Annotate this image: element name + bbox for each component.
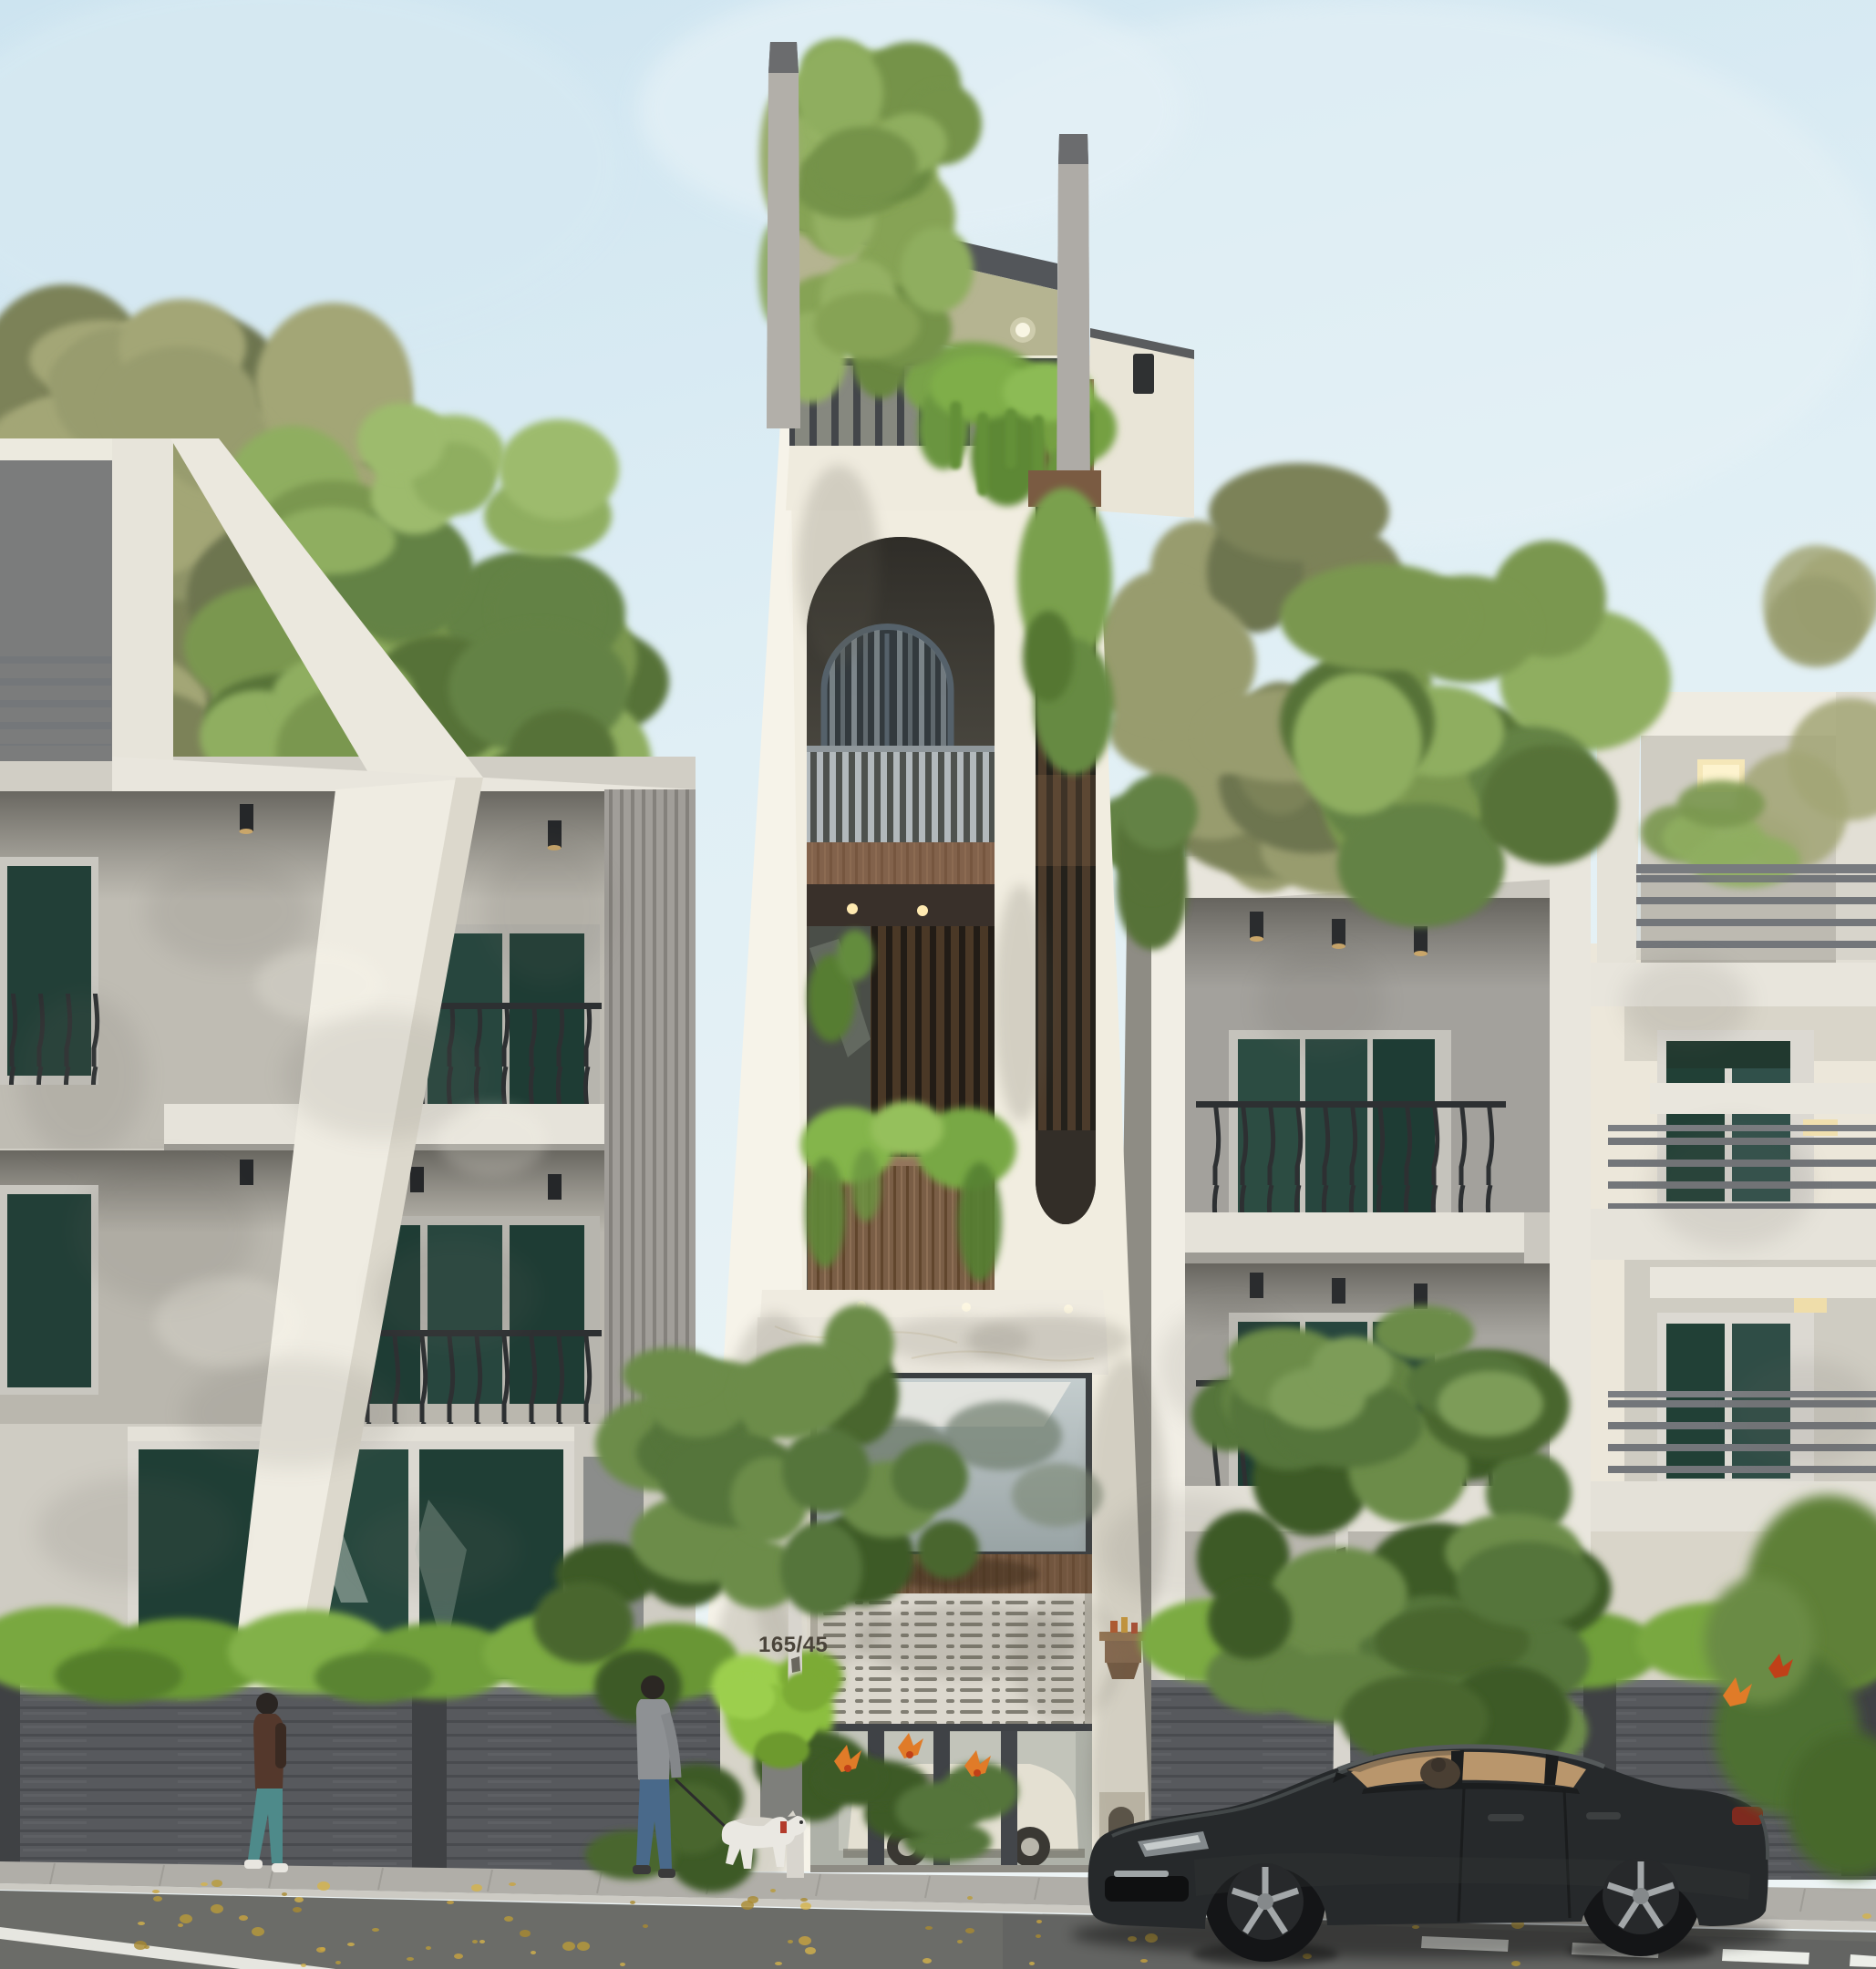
svg-text:165/45: 165/45 — [758, 1633, 828, 1657]
